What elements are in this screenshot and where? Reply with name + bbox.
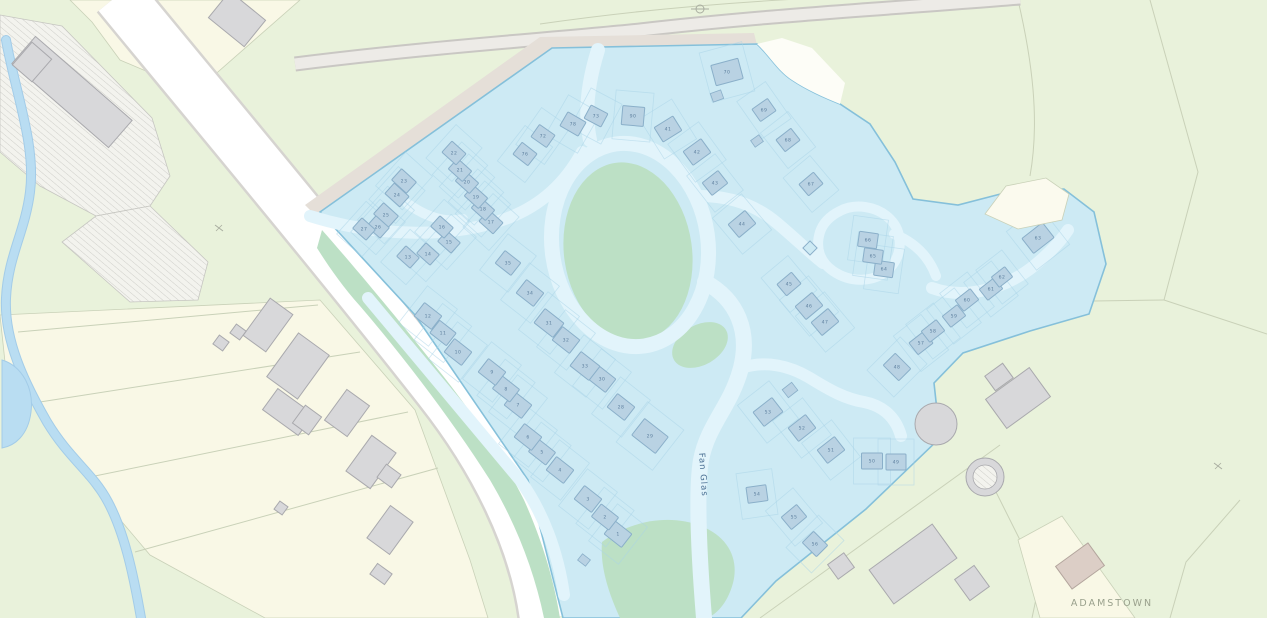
plot-number-wrap: 50 — [869, 459, 876, 465]
plot-number-wrap: 59 — [951, 314, 958, 320]
plot-number-wrap: 63 — [1035, 236, 1042, 242]
plot-number: 61 — [988, 287, 995, 293]
plot-number-wrap: 47 — [822, 320, 829, 326]
plot-number-wrap: 22 — [451, 151, 458, 157]
building-90[interactable]: 90 — [621, 106, 645, 127]
plot-number: 7 — [516, 403, 519, 409]
plot-number: 57 — [918, 341, 925, 347]
plot-number: 34 — [527, 291, 534, 297]
plot-number-wrap: 51 — [828, 448, 835, 454]
plot-number-wrap: 11 — [440, 331, 447, 337]
plot-number-wrap: 7 — [516, 403, 519, 409]
plot-number-wrap: 64 — [881, 267, 888, 273]
plot-number-wrap: 70 — [724, 70, 731, 76]
plot-number: 58 — [930, 329, 937, 335]
plot-number-wrap: 49 — [893, 460, 900, 466]
plot-number: 69 — [761, 108, 768, 114]
plot-number-wrap: 72 — [540, 134, 547, 140]
plot-number-wrap: 17 — [488, 220, 495, 226]
plot-number-wrap: 4 — [558, 468, 561, 474]
plot-number-wrap: 18 — [480, 207, 487, 213]
plot-number: 28 — [618, 405, 625, 411]
plot-number: 27 — [361, 227, 368, 233]
plot-number: 41 — [665, 127, 672, 133]
plot-number: 62 — [999, 275, 1006, 281]
plot-number-wrap: 60 — [964, 298, 971, 304]
plot-number: 65 — [870, 254, 877, 260]
plot-number-wrap: 14 — [425, 252, 432, 258]
plot-number: 49 — [893, 460, 900, 466]
plot-number: 43 — [712, 181, 719, 187]
plot-number-wrap: 41 — [665, 127, 672, 133]
plot-number-wrap: 24 — [394, 193, 401, 199]
plot-number: 20 — [464, 180, 471, 186]
plot-number: 31 — [546, 321, 553, 327]
plot-number-wrap: 2 — [603, 515, 606, 521]
plot-number: 26 — [375, 225, 382, 231]
plot-number: 32 — [563, 338, 570, 344]
plot-number: 33 — [582, 364, 589, 370]
townland-label: ADAMSTOWN — [1071, 598, 1153, 609]
plot-number-wrap: 58 — [930, 329, 937, 335]
plot-number-wrap: 3 — [586, 497, 589, 503]
plot-number-wrap: 25 — [383, 213, 390, 219]
plot-number-wrap: 9 — [490, 370, 493, 376]
plot-number: 17 — [488, 220, 495, 226]
plot-number: 55 — [791, 515, 798, 521]
plot-number: 16 — [439, 225, 446, 231]
plot-number-wrap: 45 — [786, 282, 793, 288]
plot-number-wrap: 48 — [894, 365, 901, 371]
plot-number: 4 — [558, 468, 561, 474]
plot-number: 46 — [806, 304, 813, 310]
plot-number-wrap: 15 — [446, 240, 453, 246]
plot-number: 19 — [473, 195, 480, 201]
tank-structure — [973, 465, 997, 489]
plot-number-wrap: 52 — [799, 426, 806, 432]
plot-number: 56 — [812, 542, 819, 548]
plot-number: 50 — [869, 459, 876, 465]
plot-number: 30 — [599, 377, 606, 383]
plot-number-wrap: 8 — [504, 387, 507, 393]
plot-number-wrap: 76 — [522, 152, 529, 158]
building-66[interactable]: 66 — [858, 231, 879, 248]
plot-number: 10 — [455, 350, 462, 356]
plot-number-wrap: 32 — [563, 338, 570, 344]
plot-number: 72 — [540, 134, 547, 140]
plot-number: 2 — [603, 515, 606, 521]
plot-number: 35 — [505, 261, 512, 267]
plot-number: 68 — [785, 138, 792, 144]
plot-number-wrap: 62 — [999, 275, 1006, 281]
plot-number: 59 — [951, 314, 958, 320]
plot-number: 45 — [786, 282, 793, 288]
plot-number: 29 — [647, 434, 654, 440]
plot-number: 9 — [490, 370, 493, 376]
plot-number-wrap: 53 — [765, 410, 772, 416]
plot-number-wrap: 57 — [918, 341, 925, 347]
plot-number: 90 — [630, 114, 637, 120]
plot-number-wrap: 69 — [761, 108, 768, 114]
plot-number: 66 — [865, 238, 872, 244]
map-viewport[interactable]: 1234567891011121314151617181920212223242… — [0, 0, 1267, 618]
plot-number-wrap: 10 — [455, 350, 462, 356]
plot-number: 24 — [394, 193, 401, 199]
map-canvas[interactable]: 1234567891011121314151617181920212223242… — [0, 0, 1267, 618]
plot-number-wrap: 55 — [791, 515, 798, 521]
building-54[interactable]: 54 — [746, 485, 768, 504]
plot-number: 63 — [1035, 236, 1042, 242]
plot-number-wrap: 23 — [401, 179, 408, 185]
plot-number-wrap: 35 — [505, 261, 512, 267]
plot-number: 64 — [881, 267, 888, 273]
plot-number: 6 — [526, 435, 529, 441]
plot-number: 21 — [457, 168, 464, 174]
plot-number-wrap: 13 — [405, 255, 412, 261]
plot-number-wrap: 33 — [582, 364, 589, 370]
plot-number: 42 — [694, 150, 701, 156]
plot-number-wrap: 44 — [739, 222, 746, 228]
plot-number-wrap: 78 — [570, 122, 577, 128]
plot-number-wrap: 90 — [630, 114, 637, 120]
plot-number-wrap: 46 — [806, 304, 813, 310]
plot-number-wrap: 20 — [464, 180, 471, 186]
plot-number-wrap: 65 — [870, 254, 877, 260]
plot-number: 53 — [765, 410, 772, 416]
plot-number-wrap: 27 — [361, 227, 368, 233]
plot-number: 73 — [593, 114, 600, 120]
plot-number: 14 — [425, 252, 432, 258]
plot-number-wrap: 68 — [785, 138, 792, 144]
plot-number: 5 — [540, 450, 543, 456]
round-structure — [915, 403, 957, 445]
plot-number-wrap: 30 — [599, 377, 606, 383]
plot-number: 48 — [894, 365, 901, 371]
plot-number-wrap: 43 — [712, 181, 719, 187]
plot-number: 23 — [401, 179, 408, 185]
plot-number-wrap: 5 — [540, 450, 543, 456]
plot-number-wrap: 67 — [808, 182, 815, 188]
plot-number-wrap: 21 — [457, 168, 464, 174]
plot-number-wrap: 34 — [527, 291, 534, 297]
plot-number: 8 — [504, 387, 507, 393]
plot-number-wrap: 29 — [647, 434, 654, 440]
plot-number: 44 — [739, 222, 746, 228]
plot-number-wrap: 73 — [593, 114, 600, 120]
plot-number: 60 — [964, 298, 971, 304]
plot-number-wrap: 56 — [812, 542, 819, 548]
plot-number-wrap: 54 — [754, 492, 761, 498]
plot-number-wrap: 66 — [865, 238, 872, 244]
plot-number: 3 — [586, 497, 589, 503]
building-50[interactable]: 50 — [862, 453, 883, 469]
plot-number: 70 — [724, 70, 731, 76]
plot-number-wrap: 31 — [546, 321, 553, 327]
plot-number: 67 — [808, 182, 815, 188]
plot-number: 76 — [522, 152, 529, 158]
plot-number: 52 — [799, 426, 806, 432]
plot-number: 18 — [480, 207, 487, 213]
plot-number-wrap: 19 — [473, 195, 480, 201]
plot-number-wrap: 26 — [375, 225, 382, 231]
plot-number: 51 — [828, 448, 835, 454]
plot-number: 47 — [822, 320, 829, 326]
plot-number: 15 — [446, 240, 453, 246]
building-49[interactable]: 49 — [886, 454, 906, 470]
plot-number: 13 — [405, 255, 412, 261]
plot-number-wrap: 28 — [618, 405, 625, 411]
plot-number-wrap: 1 — [616, 532, 619, 538]
plot-number: 11 — [440, 331, 447, 337]
plot-number: 25 — [383, 213, 390, 219]
plot-number: 22 — [451, 151, 458, 157]
plot-number-wrap: 16 — [439, 225, 446, 231]
plot-number-wrap: 12 — [425, 314, 432, 320]
plot-number: 12 — [425, 314, 432, 320]
plot-number: 1 — [616, 532, 619, 538]
building-65[interactable]: 65 — [863, 248, 884, 265]
plot-number: 54 — [754, 492, 761, 498]
plot-number-wrap: 42 — [694, 150, 701, 156]
plot-number: 78 — [570, 122, 577, 128]
plot-number-wrap: 61 — [988, 287, 995, 293]
plot-number-wrap: 6 — [526, 435, 529, 441]
